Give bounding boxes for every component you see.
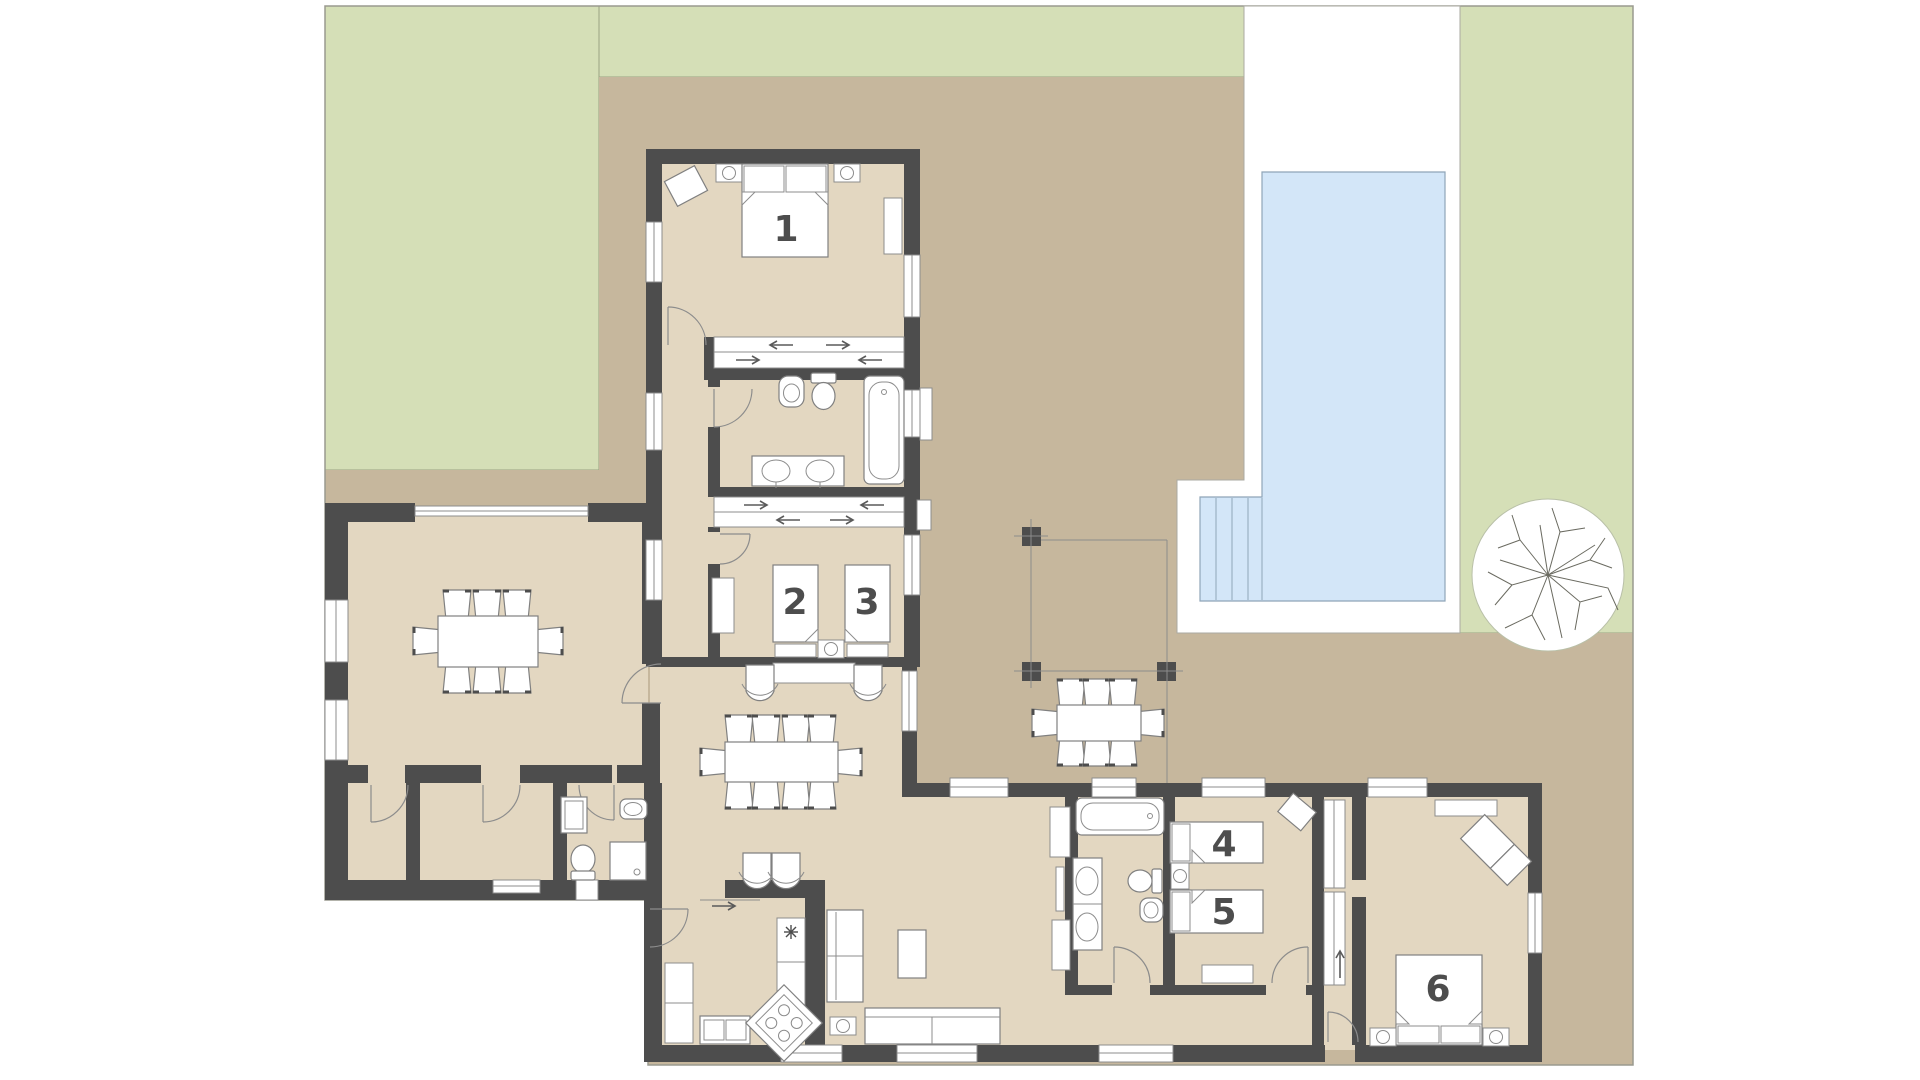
vanity-2 xyxy=(1073,858,1102,950)
toilet-2 xyxy=(571,845,595,880)
bathtub-2 xyxy=(1076,798,1164,835)
dresser xyxy=(884,198,902,254)
cabinet xyxy=(561,797,587,833)
room-label-6: 6 xyxy=(1425,969,1450,1010)
side-table xyxy=(830,1017,856,1035)
nightstand xyxy=(1483,1028,1509,1046)
room-label-4: 4 xyxy=(1211,824,1236,865)
wardrobe-band-bedroom1 xyxy=(714,337,904,368)
room-label-3: 3 xyxy=(854,582,879,623)
nightstand xyxy=(818,640,844,658)
hallway-wardrobe xyxy=(1324,800,1345,985)
dresser-45 xyxy=(1202,965,1253,983)
floor-plan-canvas: 1 xyxy=(0,0,1920,1080)
lawn-left xyxy=(325,6,599,470)
toilet xyxy=(811,373,836,410)
double-vanity xyxy=(752,456,844,488)
nightstand xyxy=(1370,1028,1396,1046)
bidet-2 xyxy=(1140,898,1163,922)
outdoor-table xyxy=(1057,705,1141,741)
console-table xyxy=(773,663,855,683)
shower xyxy=(610,842,646,880)
cooktop-hood-symbol xyxy=(784,925,798,939)
nightstand xyxy=(1171,863,1189,889)
room-label-5: 5 xyxy=(1211,892,1236,933)
nightstand xyxy=(834,164,860,182)
floor-plan-page: 1 xyxy=(0,0,1920,1080)
dresser-6 xyxy=(1435,800,1497,816)
desk xyxy=(712,578,734,633)
bidet xyxy=(779,376,804,407)
room-label-2: 2 xyxy=(782,582,807,623)
tree xyxy=(1472,499,1624,651)
toilet-3 xyxy=(1128,869,1162,893)
long-dining-table xyxy=(725,742,838,782)
coffee-table xyxy=(898,930,926,978)
dining-table xyxy=(438,616,538,667)
wardrobe-band-kidsroom xyxy=(714,497,904,527)
nightstand xyxy=(716,164,742,182)
hand-basin xyxy=(620,799,647,819)
sink-cabinet xyxy=(700,1016,750,1044)
bathtub xyxy=(864,376,904,484)
room-label-1: 1 xyxy=(773,209,798,250)
